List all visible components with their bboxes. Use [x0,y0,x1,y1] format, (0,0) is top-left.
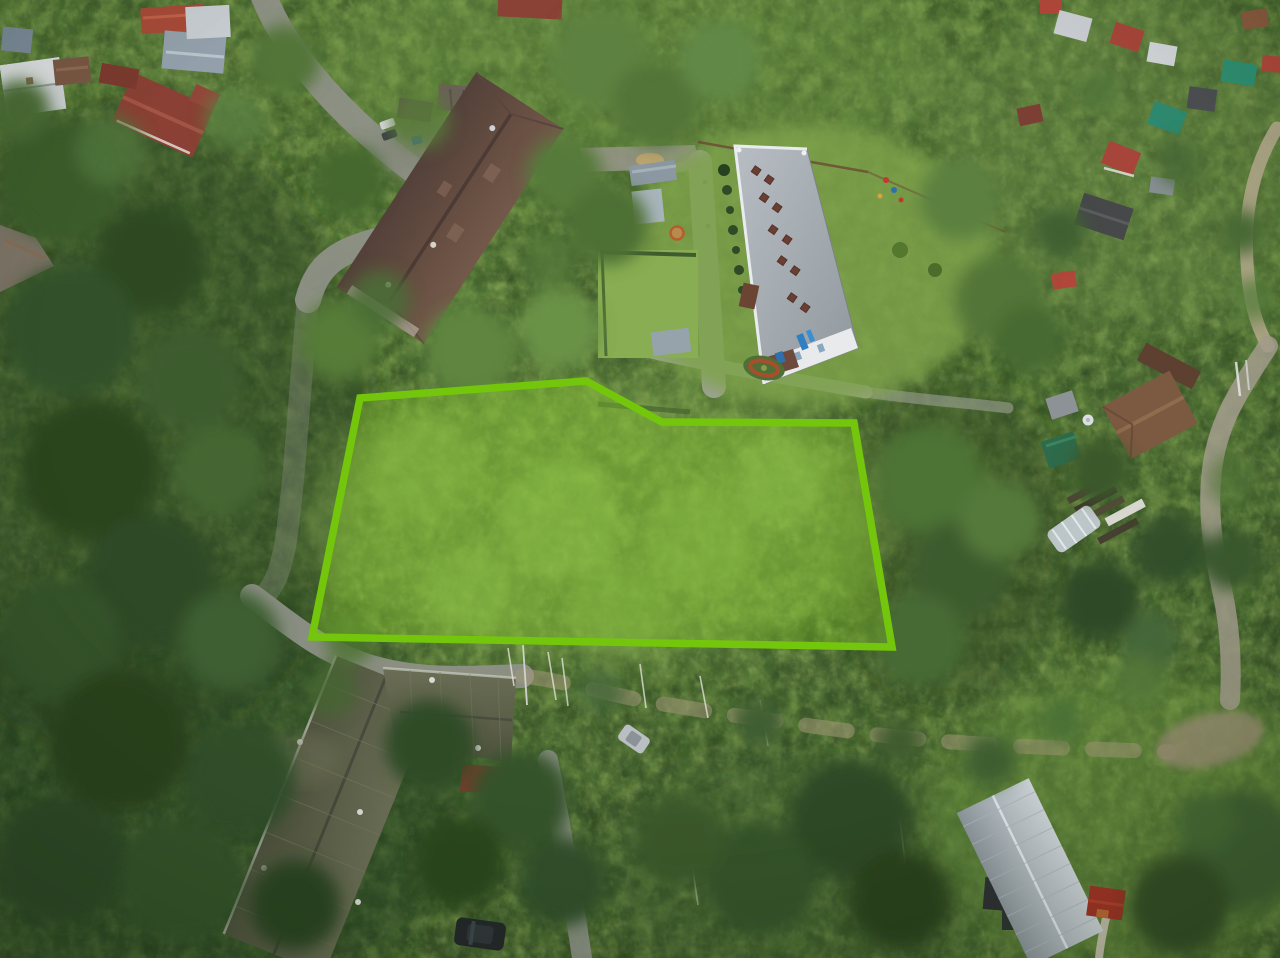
aerial-photo [0,0,1280,958]
aerial-photo-canvas [0,0,1280,958]
plot-boundary-overlay [312,381,892,647]
